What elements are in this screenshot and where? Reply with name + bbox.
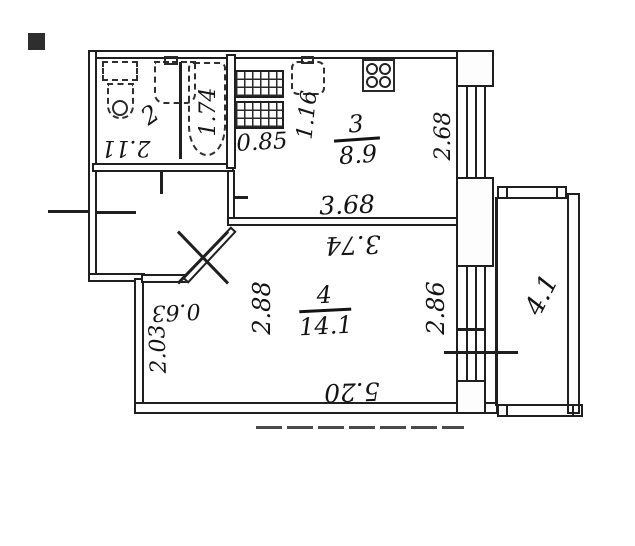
toilet-tank-icon — [102, 61, 138, 81]
floor-plan-canvas: 2.11 2 1.74 0.85 1.16 2.68 3.68 3.74 2.8… — [0, 0, 635, 546]
balcony-left-edge — [495, 197, 498, 406]
dim-room4-width-top: 3.74 — [325, 232, 382, 259]
entry-door-line-inner — [97, 211, 136, 214]
wall-top — [88, 50, 462, 59]
room4-area: 14.1 — [298, 311, 353, 340]
room4-number: 4 — [297, 282, 352, 310]
balcony-top-rail — [497, 186, 567, 199]
balcony-bottom-rail — [497, 404, 583, 417]
dim-kitchen-window-wall: 2.68 — [433, 112, 455, 161]
stove-burner-icon — [379, 63, 391, 75]
stove-icon — [362, 59, 395, 92]
kitchen-counter-icon-1 — [234, 70, 284, 98]
wall-right-bottom-block — [456, 380, 486, 414]
entry-door-line-outer — [48, 210, 89, 213]
washbasin-tap-icon — [164, 56, 178, 65]
kitchen-door-jamb — [234, 196, 248, 199]
wall-right-mid-block — [456, 177, 494, 267]
room4-label: 4 14.1 — [297, 282, 353, 341]
balcony-door-threshold-line — [444, 351, 518, 354]
wall-bottom — [134, 402, 498, 414]
wall-left-lower — [134, 278, 144, 414]
dim-room4-left-upper: 2.88 — [250, 281, 274, 334]
balcony-window-divider — [456, 328, 486, 331]
dim-room4-length: 5.20 — [324, 379, 381, 406]
kitchen-window — [456, 85, 486, 179]
dim-balcony-length: 4.1 — [521, 271, 563, 320]
room3-area: 8.9 — [334, 140, 382, 170]
dim-kitchen-sink-width: 1.16 — [295, 89, 322, 140]
stove-burner-icon — [366, 76, 378, 88]
dim-kitchen-counter-width: 0.85 — [236, 130, 288, 156]
toilet-drain-icon — [112, 100, 128, 116]
bathroom-door-jamb — [160, 172, 163, 194]
dim-bathtub-length: 1.74 — [198, 88, 220, 137]
room3-label: 3 8.9 — [332, 110, 382, 169]
wall-right-top-block — [456, 50, 494, 87]
wall-bathroom-bottom — [92, 163, 234, 172]
kitchen-sink-tap-icon — [301, 56, 314, 64]
dim-room4-right: 2.86 — [424, 281, 448, 334]
room2-number-label: 2 — [137, 101, 163, 129]
stove-burner-icon — [366, 63, 378, 75]
dim-kitchen-width: 3.68 — [319, 192, 376, 219]
lower-slab-line — [256, 426, 464, 429]
dim-bathroom-depth: 2.11 — [102, 136, 151, 158]
room4-balcony-window — [456, 265, 486, 382]
stove-burner-icon — [379, 76, 391, 88]
dim-room4-left-lower: 2.03 — [147, 324, 171, 374]
room3-number: 3 — [332, 110, 380, 138]
wall-hall-chamfer — [182, 226, 236, 283]
scan-mark-square — [28, 33, 45, 50]
kitchen-counter-icon-2 — [234, 101, 284, 129]
balcony-right-rail — [567, 193, 580, 414]
dim-hall-nook: 0.63 — [151, 299, 201, 324]
